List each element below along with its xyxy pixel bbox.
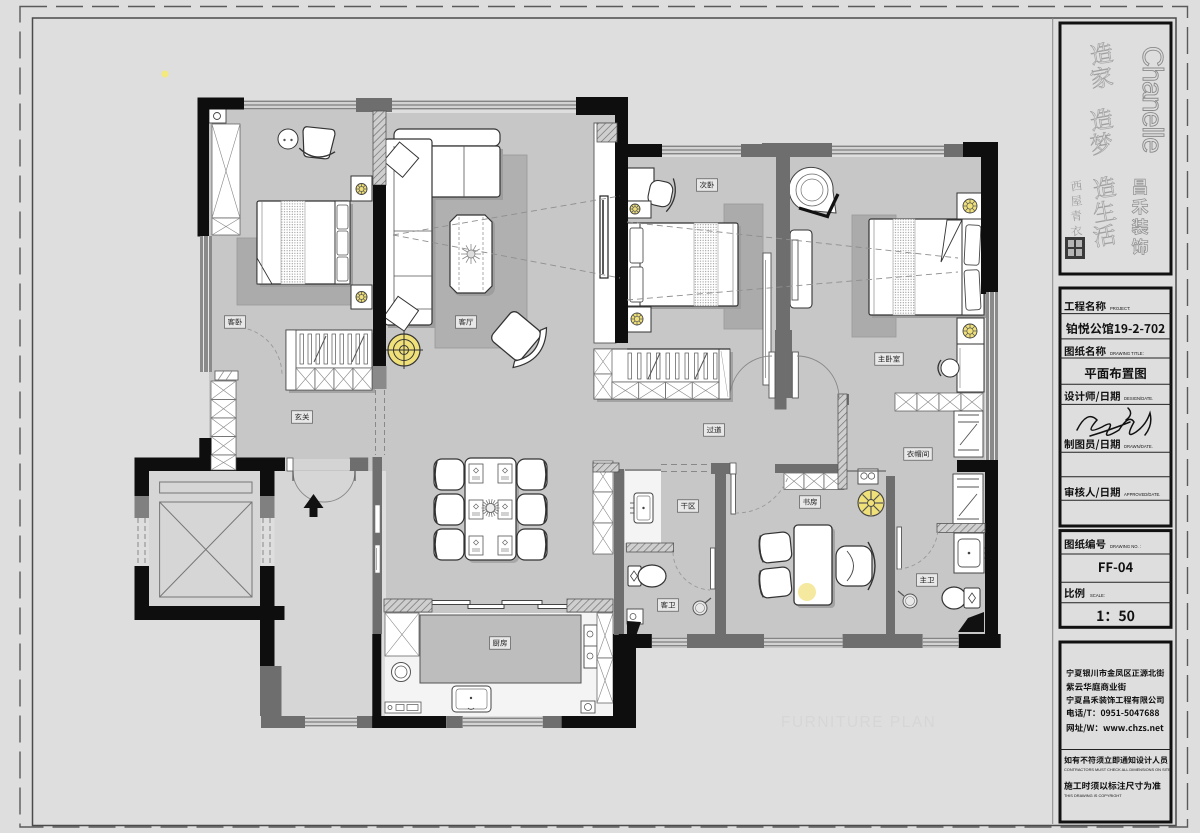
svg-text:SCALE:: SCALE: <box>1090 593 1105 598</box>
svg-text:APPROVED/DATE.: APPROVED/DATE. <box>1124 492 1160 497</box>
svg-text:DRAWING TITLE:: DRAWING TITLE: <box>1110 351 1144 356</box>
svg-text:DESIGN/DATE.: DESIGN/DATE. <box>1124 396 1153 401</box>
svg-text:CONTRACTORS MUST CHECK ALL DIM: CONTRACTORS MUST CHECK ALL DIMENSIONS ON… <box>1064 767 1171 772</box>
svg-text:PROJECT:: PROJECT: <box>1110 306 1130 311</box>
svg-text:FURNITURE PLAN: FURNITURE PLAN <box>781 714 936 731</box>
svg-text:Chanelle: Chanelle <box>1136 46 1168 152</box>
svg-text:DRAWING NO. :: DRAWING NO. : <box>1110 544 1141 549</box>
svg-text:DRAWN/DATE.: DRAWN/DATE. <box>1124 444 1153 449</box>
svg-text:THIS DRAWING IS COPYRIGHT: THIS DRAWING IS COPYRIGHT <box>1064 793 1122 798</box>
